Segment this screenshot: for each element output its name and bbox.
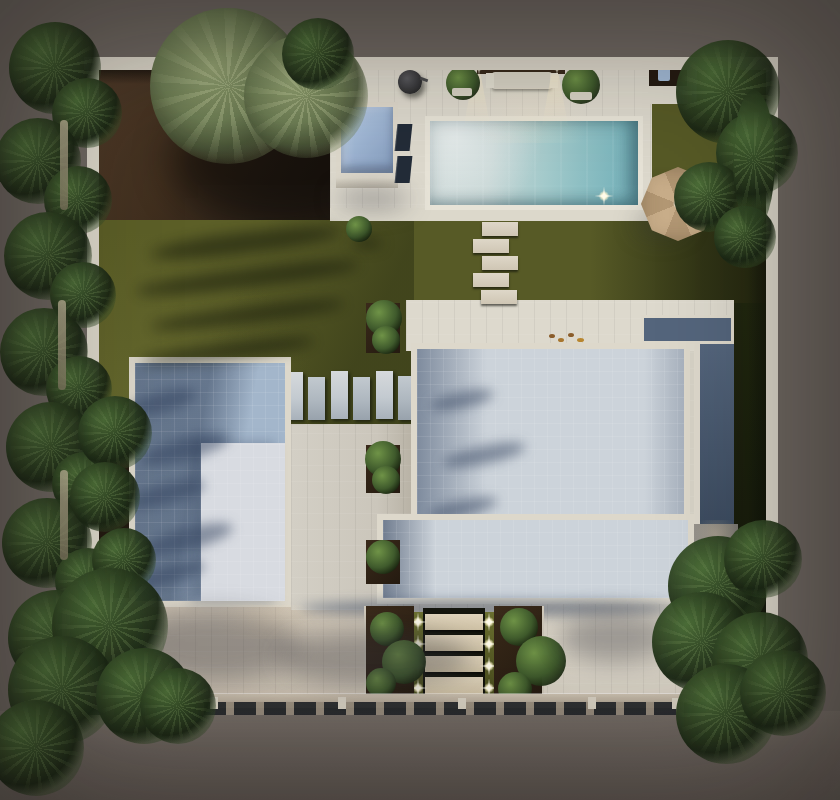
stepping-stone bbox=[473, 239, 509, 253]
curb-post bbox=[588, 697, 596, 709]
tree-trunk bbox=[60, 120, 68, 210]
paver bbox=[353, 377, 370, 420]
main-roof bbox=[411, 343, 690, 521]
palm-tree-dark bbox=[282, 18, 354, 90]
curb-post bbox=[338, 697, 346, 709]
lounge-cushions bbox=[492, 72, 552, 89]
lounge-armrest bbox=[486, 73, 494, 88]
spa-south-face bbox=[336, 178, 398, 188]
tree-trunk bbox=[60, 470, 68, 560]
south-wing-roof bbox=[377, 514, 694, 604]
entrance-step bbox=[425, 614, 483, 630]
planter-shrub bbox=[372, 326, 400, 354]
planter-shrub bbox=[366, 540, 400, 574]
terrace-leaf-scatter bbox=[568, 333, 574, 337]
sun-lounger bbox=[395, 124, 413, 151]
stepping-stone bbox=[482, 222, 518, 236]
cypress-tree bbox=[733, 90, 775, 230]
plant-pot bbox=[570, 92, 592, 100]
spa-shadow bbox=[336, 188, 410, 210]
south-wing-tiles bbox=[383, 520, 688, 598]
curb-post bbox=[458, 698, 466, 709]
plant-pot bbox=[452, 88, 472, 96]
sun-lounger bbox=[395, 156, 413, 183]
paver bbox=[308, 377, 325, 420]
pot-shadow bbox=[352, 238, 382, 248]
terrace-leaf-scatter bbox=[577, 338, 584, 342]
east-roof-strip bbox=[694, 344, 734, 527]
pine-tree bbox=[70, 462, 140, 532]
tree-trunk bbox=[58, 300, 66, 390]
terrace-leaf-scatter bbox=[549, 334, 555, 338]
palm-tree-dark bbox=[740, 650, 826, 736]
palm-tree-dark bbox=[140, 668, 216, 744]
main-roof-tiles bbox=[417, 349, 684, 515]
stepping-stone bbox=[482, 256, 518, 270]
paver bbox=[376, 371, 393, 419]
pine-tree bbox=[78, 396, 152, 470]
stepping-stone bbox=[481, 290, 517, 304]
pool-underwater-light bbox=[598, 190, 610, 202]
palm-shadow-on-driveway bbox=[280, 630, 470, 686]
east-roof-upper bbox=[641, 315, 734, 344]
bbq-grill bbox=[398, 70, 422, 94]
terrace-leaf-scatter bbox=[558, 338, 564, 342]
stepping-stone bbox=[473, 273, 509, 287]
paver bbox=[331, 371, 348, 419]
aerial-villa-render bbox=[0, 0, 840, 800]
palm-tree-dark bbox=[724, 520, 802, 598]
planter-shrub bbox=[372, 466, 400, 494]
